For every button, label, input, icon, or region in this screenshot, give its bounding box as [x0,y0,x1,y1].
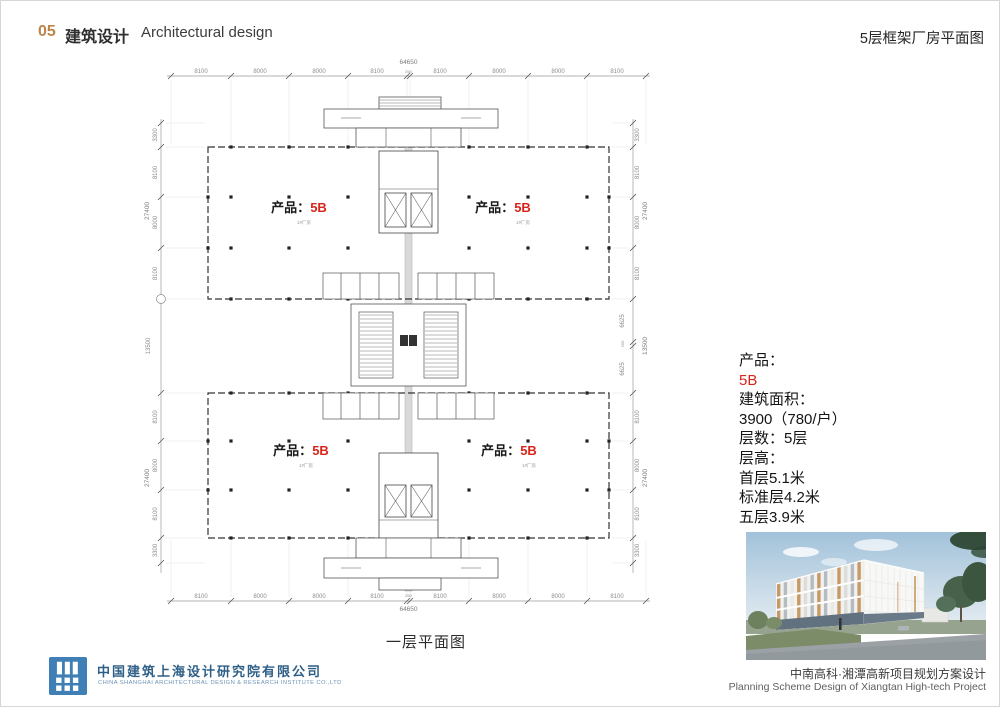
svg-text:27400: 27400 [642,202,649,220]
svg-text:3300: 3300 [635,543,641,557]
dimension-labels-right: 3300 8100 8000 8100 27400 6625 250 6625 … [620,128,649,558]
svg-text:13500: 13500 [642,337,649,355]
svg-text:8100: 8100 [610,594,624,600]
project-caption-zh: 中南高科·湘潭高新项目规划方案设计 [726,667,986,681]
svg-text:8100: 8100 [635,410,641,424]
presentation-slide: 05 建筑设计 Architectural design 5层框架厂房平面图 6… [0,0,1000,707]
svg-text:250: 250 [620,340,625,347]
svg-text:8100: 8100 [635,165,641,179]
svg-text:250: 250 [405,593,412,598]
svg-text:3300: 3300 [153,543,159,557]
company-name-en: CHINA SHANGHAI ARCHITECTURAL DESIGN & RE… [98,680,342,686]
info-line: 3900（780/户） [739,410,989,430]
info-line: 五层3.9米 [739,508,989,528]
building-rendering-scene [746,532,986,660]
svg-text:8000: 8000 [312,594,326,600]
svg-text:3300: 3300 [635,128,641,142]
company-name-zh: 中国建筑上海设计研究院有限公司 [97,661,322,680]
svg-text:6625: 6625 [620,314,626,328]
svg-text:8000: 8000 [153,215,159,229]
svg-text:1#厂房: 1#厂房 [522,462,537,469]
svg-text:1#厂房: 1#厂房 [299,462,314,469]
project-caption-en: Planning Scheme Design of Xiangtan High-… [726,681,986,694]
svg-text:1#厂房: 1#厂房 [297,219,312,226]
section-title-zh: 建筑设计 [65,23,129,47]
svg-text:8100: 8100 [433,69,447,75]
svg-text:27400: 27400 [642,469,649,487]
svg-text:8100: 8100 [153,507,159,521]
svg-text:27400: 27400 [144,469,151,487]
svg-text:8100: 8100 [153,165,159,179]
info-line: 建筑面积： [739,390,989,410]
product-info-block: 产品： 5B 建筑面积： 3900（780/户） 层数：5层 层高： 首层5.1… [739,351,989,527]
company-logo-glyph [49,657,87,695]
svg-text:13500: 13500 [146,337,152,354]
svg-text:8000: 8000 [253,69,267,75]
svg-text:产品：5B: 产品：5B [271,200,327,215]
building-rendering [746,532,986,660]
svg-text:8000: 8000 [253,594,267,600]
info-line: 层数：5层 [739,429,989,449]
svg-text:64650: 64650 [399,606,417,613]
dimension-labels-top: 64650 8100 8000 8000 8100 250 8100 8000 … [194,59,624,75]
svg-text:250: 250 [405,69,412,74]
svg-text:8000: 8000 [153,458,159,472]
svg-text:产品：5B: 产品：5B [481,443,537,458]
svg-text:8100: 8100 [194,594,208,600]
bottom-entrance [324,453,498,590]
info-line: 层高： [739,449,989,469]
svg-text:27400: 27400 [144,202,151,220]
svg-text:8100: 8100 [635,266,641,280]
floor-plan-drawing: 64650 8100 8000 8000 8100 250 8100 8000 … [141,53,701,623]
svg-text:8000: 8000 [635,458,641,472]
svg-text:8100: 8100 [370,594,384,600]
dimension-labels-bottom: 8100 8000 8000 8100 250 8100 8000 8000 8… [194,593,624,613]
plan-caption: 一层平面图 [326,631,526,652]
svg-text:8100: 8100 [194,69,208,75]
svg-text:8100: 8100 [635,507,641,521]
svg-text:3300: 3300 [153,128,159,142]
svg-text:8000: 8000 [492,69,506,75]
svg-text:产品：5B: 产品：5B [475,200,531,215]
info-line: 标准层4.2米 [739,488,989,508]
info-line: 首层5.1米 [739,469,989,489]
svg-text:8000: 8000 [635,215,641,229]
svg-text:8000: 8000 [492,594,506,600]
grid-bubble [157,295,166,304]
svg-text:8100: 8100 [370,69,384,75]
info-line-product-code: 5B [739,371,989,391]
dimension-labels-left: 3300 8100 8000 8100 27400 13500 8100 800… [144,128,159,558]
middle-connector [351,304,466,386]
project-caption: 中南高科·湘潭高新项目规划方案设计 Planning Scheme Design… [726,667,986,694]
svg-text:8000: 8000 [551,594,565,600]
svg-text:8100: 8100 [433,594,447,600]
svg-text:6625: 6625 [620,362,626,376]
svg-text:8000: 8000 [312,69,326,75]
svg-text:1#厂房: 1#厂房 [516,219,531,226]
svg-text:8100: 8100 [610,69,624,75]
svg-text:8100: 8100 [153,266,159,280]
svg-text:8100: 8100 [153,410,159,424]
section-title-en: Architectural design [141,24,273,41]
svg-text:8000: 8000 [551,69,565,75]
company-logo [49,657,87,695]
svg-text:产品：5B: 产品：5B [273,443,329,458]
page-title: 5层框架厂房平面图 [860,27,984,48]
svg-text:64650: 64650 [399,59,417,66]
slide-number: 05 [38,23,56,41]
info-line: 产品： [739,351,989,371]
